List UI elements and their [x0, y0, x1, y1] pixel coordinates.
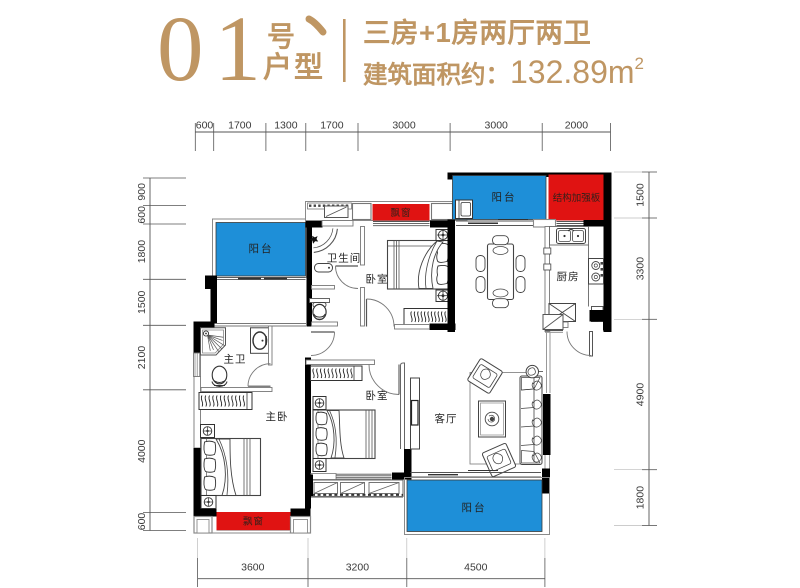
svg-text:阳台: 阳台: [462, 501, 487, 514]
svg-text:2000: 2000: [565, 120, 589, 132]
svg-text:卧室: 卧室: [366, 273, 389, 286]
svg-text:3600: 3600: [241, 562, 265, 574]
svg-text:飘窗: 飘窗: [390, 207, 411, 219]
svg-text:户型: 户型: [263, 50, 325, 84]
svg-text:结构加强板: 结构加强板: [553, 192, 601, 204]
svg-text:4500: 4500: [464, 562, 488, 574]
svg-text:3300: 3300: [635, 257, 647, 281]
svg-text:客厅: 客厅: [435, 412, 458, 425]
svg-text:600: 600: [136, 206, 148, 224]
svg-text:900: 900: [136, 183, 148, 201]
svg-text:4900: 4900: [635, 383, 647, 407]
svg-text:三房+1房两厅两卫: 三房+1房两厅两卫: [363, 17, 591, 48]
svg-text:3000: 3000: [392, 120, 416, 132]
svg-text:飘窗: 飘窗: [243, 516, 264, 528]
svg-text:01: 01: [157, 0, 272, 101]
svg-text:1800: 1800: [136, 240, 148, 264]
svg-text:卫生间: 卫生间: [327, 252, 362, 265]
svg-text:1700: 1700: [320, 120, 344, 132]
svg-text:号: 号: [267, 21, 295, 52]
svg-text:1500: 1500: [635, 183, 647, 207]
svg-text:阳台: 阳台: [249, 242, 274, 255]
svg-text:4000: 4000: [136, 439, 148, 463]
svg-text:2100: 2100: [136, 346, 148, 370]
svg-text:600: 600: [136, 513, 148, 531]
svg-text:1300: 1300: [274, 120, 298, 132]
svg-text:1800: 1800: [635, 486, 647, 510]
svg-text:3000: 3000: [485, 120, 509, 132]
svg-text:3200: 3200: [346, 562, 370, 574]
svg-text:主卧: 主卧: [266, 410, 289, 423]
svg-text:主卫: 主卫: [224, 354, 247, 366]
svg-text:1700: 1700: [228, 120, 252, 132]
svg-text:建筑面积约：132.89m2: 建筑面积约：132.89m2: [363, 54, 644, 90]
svg-text:600: 600: [196, 120, 214, 132]
svg-text:厨房: 厨房: [557, 270, 580, 283]
svg-text:阳台: 阳台: [492, 191, 517, 204]
svg-text:1500: 1500: [136, 290, 148, 314]
